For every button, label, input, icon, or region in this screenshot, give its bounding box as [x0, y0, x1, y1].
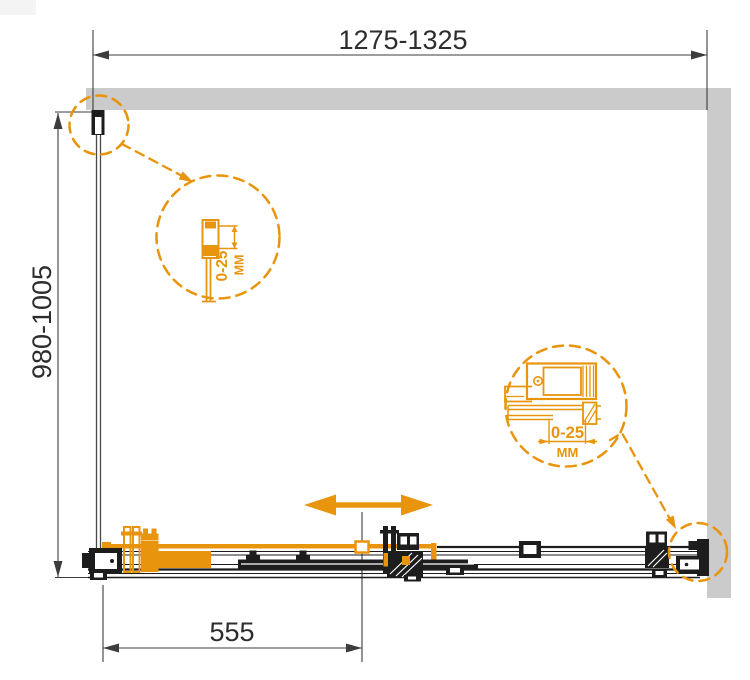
installation-diagram: 1275-1325 980-1005 555	[0, 0, 750, 680]
arrowhead-right	[346, 644, 362, 653]
screw-center	[537, 380, 540, 383]
screw-dot	[110, 559, 114, 563]
end-profile-slot	[680, 560, 699, 570]
carriage-crossbar	[121, 532, 142, 536]
carriage-crossbar	[380, 530, 399, 534]
wall-right	[707, 88, 731, 598]
sliding-door-panel	[238, 551, 478, 576]
arrowhead-left	[304, 495, 336, 516]
arrowhead-left	[93, 51, 109, 60]
installation-diagram-page: 1275-1325 980-1005 555	[0, 0, 750, 680]
arrowhead-left	[103, 644, 119, 653]
arrow-shaft	[334, 502, 403, 507]
carriage-accent	[402, 556, 410, 565]
bracket-slot	[524, 545, 537, 554]
profile-hatch	[583, 366, 594, 398]
scan-artifact	[0, 0, 36, 15]
detail-arrowhead	[232, 226, 238, 232]
wall-anchor	[82, 553, 89, 568]
door-clip	[250, 551, 257, 555]
detail-view-left: 0-25 ММ	[202, 220, 247, 302]
end-block-hatch	[584, 404, 596, 423]
fixed-side-panel	[92, 110, 105, 549]
roller-slot	[410, 537, 417, 545]
arrowhead-right	[401, 495, 433, 516]
width-dimension-label: 1275-1325	[338, 25, 467, 55]
roller-slot	[659, 535, 665, 543]
detail-left-unit-label: ММ	[233, 255, 247, 276]
end-profile-step	[689, 541, 698, 550]
door-offset-label: 555	[209, 617, 254, 647]
carriage-accent	[384, 553, 389, 567]
slide-direction-arrow-icon	[304, 495, 433, 516]
roller-slot	[650, 535, 656, 543]
leader-dashes	[122, 144, 184, 177]
door-clip	[246, 555, 260, 561]
height-dimension-label: 980-1005	[27, 265, 57, 379]
leader-arrowhead	[666, 515, 676, 529]
door-clip	[300, 551, 307, 555]
roller-slot	[401, 537, 408, 545]
wall-profile-slot	[95, 117, 102, 134]
profile-inner	[544, 368, 582, 396]
foot-slot	[408, 577, 416, 580]
detail-arrowhead	[540, 439, 550, 445]
arrowhead-bottom	[54, 561, 63, 577]
detail-arrowhead	[586, 439, 596, 445]
bottom-sliding-track	[82, 526, 709, 582]
detail-right-unit-label: ММ	[557, 445, 579, 460]
roller-carriage-left	[121, 527, 211, 572]
height-dimension: 980-1005	[27, 112, 93, 578]
carriage-plate	[158, 551, 211, 568]
foot-slot	[94, 573, 103, 578]
detail-right-adjustment-label: 0-25	[551, 424, 584, 442]
leader-line-left	[122, 144, 193, 182]
foot-slot	[656, 571, 664, 575]
detail-view-right: 0-25 ММ	[505, 364, 601, 461]
glass-pane-lines	[97, 112, 101, 549]
carriage-block	[141, 541, 159, 572]
wall-top	[86, 88, 731, 110]
leader-line-right	[610, 433, 676, 529]
hanging-bracket	[519, 541, 541, 558]
door-bar-step	[468, 560, 478, 565]
arrowhead-top	[54, 113, 63, 129]
rail-lines	[508, 406, 583, 420]
profile-cap	[205, 222, 216, 229]
clamp-slot	[450, 568, 460, 573]
track-end-profile	[676, 539, 709, 576]
arrowhead-right	[691, 51, 707, 60]
leader-arrowhead	[179, 171, 193, 182]
rail-bracket	[356, 542, 369, 553]
detail-arrowhead	[232, 243, 238, 249]
track-left-bracket	[82, 548, 122, 580]
carriage-cap	[141, 534, 159, 541]
door-clip	[296, 555, 310, 561]
leader-dashes	[610, 433, 671, 521]
screw-dot	[685, 563, 689, 567]
detail-left-adjustment-label: 0-25	[214, 250, 231, 281]
